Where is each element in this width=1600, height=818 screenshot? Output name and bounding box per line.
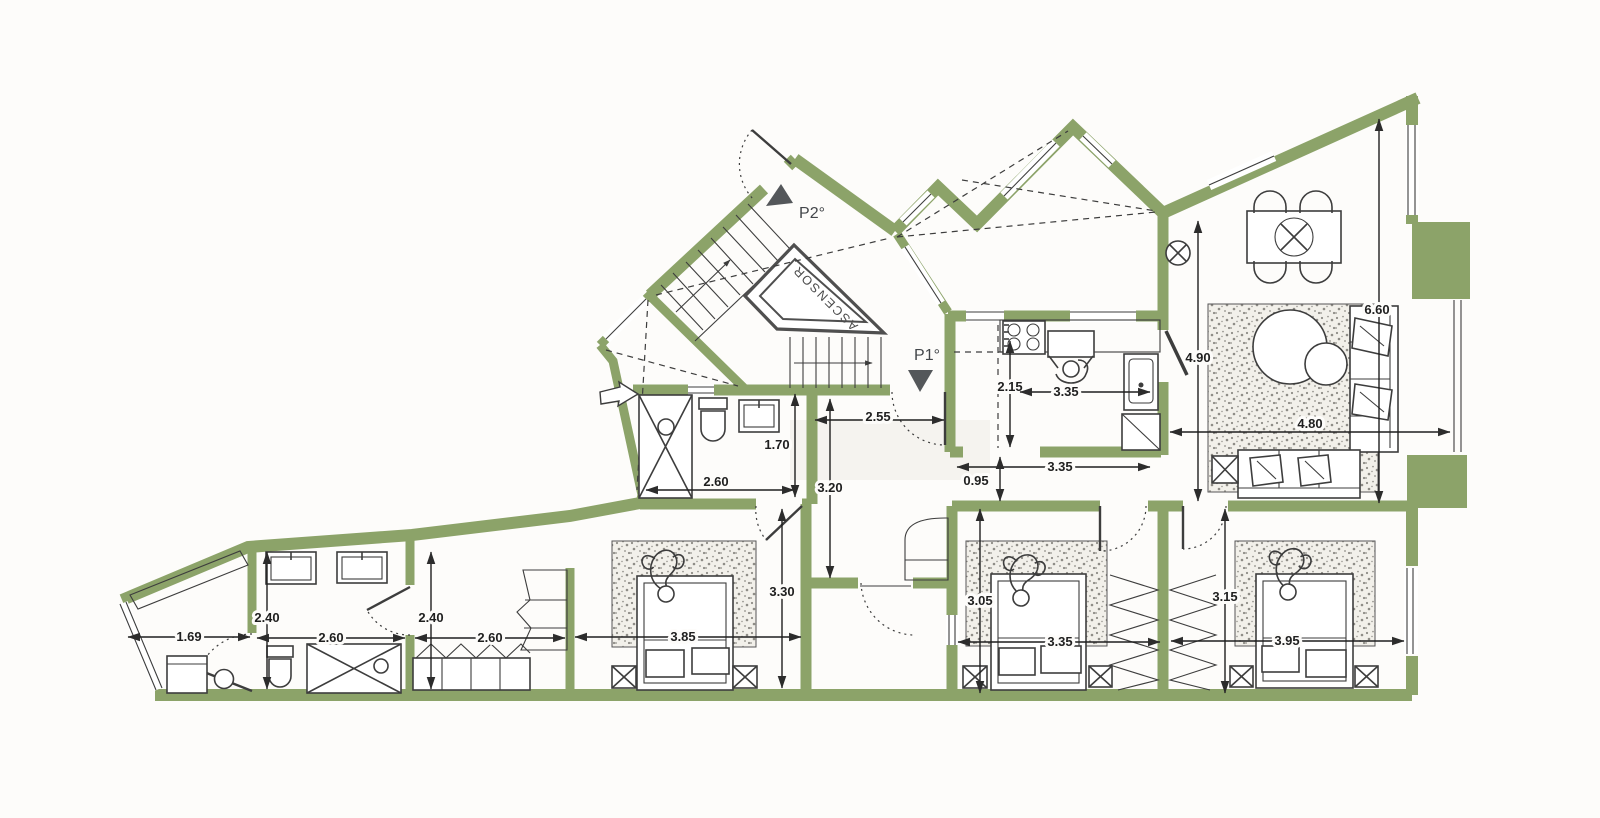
dimension-label: 3.05 [967, 593, 992, 608]
pillow [1306, 650, 1346, 677]
dimension-label: 2.60 [318, 630, 343, 645]
dimension-label: 4.90 [1185, 350, 1210, 365]
floor-marker-p1: P1° [914, 347, 940, 364]
person-at-table [1063, 361, 1079, 377]
dimension-label: 2.15 [997, 379, 1022, 394]
floor-plan: ASCENSOR P2° P1° [0, 0, 1600, 818]
floor-marker-p2: P2° [799, 205, 825, 222]
pillow [646, 650, 684, 677]
washing-machine [167, 656, 207, 693]
dimension-label: 2.55 [865, 409, 890, 424]
dimension-label: 3.35 [1053, 384, 1078, 399]
chair [1254, 261, 1286, 283]
chair [1254, 191, 1286, 213]
dimension-label: 2.40 [254, 610, 279, 625]
dimension-label: 0.95 [963, 473, 988, 488]
elevator: ASCENSOR [745, 245, 884, 333]
wardrobe-zigzag [1170, 575, 1216, 690]
dimension-label: 3.35 [1047, 459, 1072, 474]
dimension-label: 6.60 [1364, 302, 1389, 317]
p1-direction-icon [908, 370, 933, 392]
hall [905, 518, 948, 580]
living-dining-room [1166, 191, 1398, 498]
dimension-label: 3.95 [1274, 633, 1299, 648]
dimension-label: 2.60 [477, 630, 502, 645]
toilet-2 [269, 659, 291, 687]
dimension-label: 4.80 [1297, 416, 1322, 431]
dimension-label: 2.40 [418, 610, 443, 625]
coffee-table-small [1305, 343, 1347, 385]
pillow [1262, 646, 1299, 672]
pillow [1041, 646, 1081, 673]
dimension-label: 3.15 [1212, 589, 1237, 604]
dimension-label: 3.30 [769, 584, 794, 599]
pillow [999, 648, 1035, 675]
dimension-label: 1.70 [764, 437, 789, 452]
toilet-tank [699, 398, 727, 409]
dimension-label: 3.35 [1047, 634, 1072, 649]
floor-plan-page: ASCENSOR P2° P1° [0, 0, 1600, 818]
bathroom-main [266, 552, 401, 693]
toilet [701, 411, 725, 441]
chair [1300, 261, 1332, 283]
dimension-label: 3.85 [670, 629, 695, 644]
toilet-tank-2 [267, 646, 293, 657]
dimension-label: 3.20 [817, 480, 842, 495]
chair [1300, 191, 1332, 213]
pillow [692, 648, 729, 674]
kitchen-table [1048, 331, 1094, 357]
wardrobe-zigzag [1110, 575, 1158, 690]
hall-cabinet [905, 518, 948, 580]
dimension-label: 2.60 [703, 474, 728, 489]
laundry-basket [215, 670, 234, 689]
p2-direction-icon [766, 184, 793, 206]
dimension-label: 1.69 [176, 629, 201, 644]
